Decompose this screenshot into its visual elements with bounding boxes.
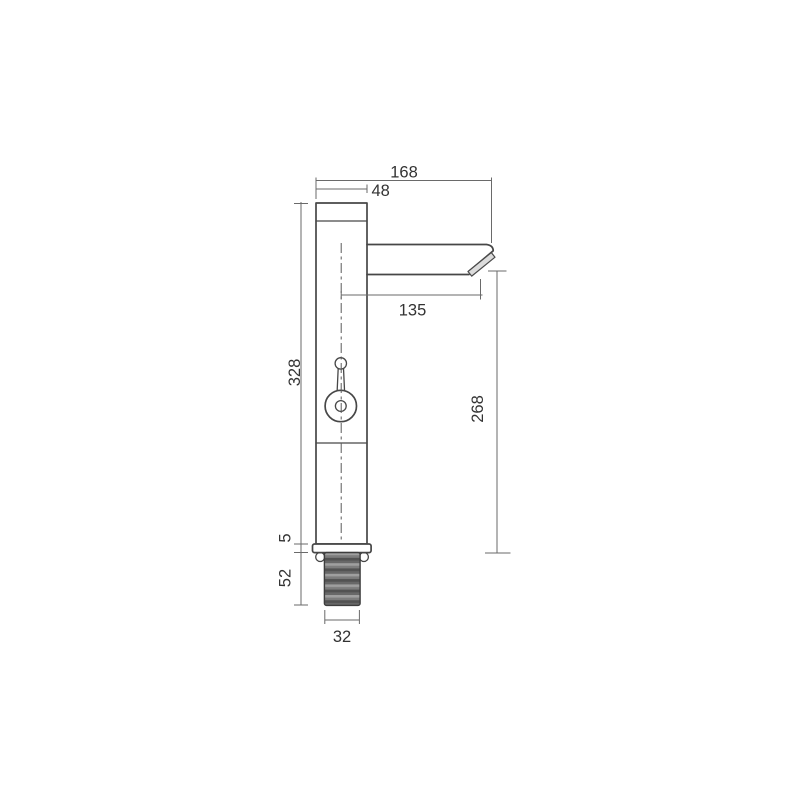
dim-label-shank-width: 32: [333, 628, 351, 646]
base-plate: [313, 544, 372, 553]
page-canvas: 168 48 328 5 52 135: [0, 0, 800, 800]
dim-label-shank-length: 52: [276, 569, 294, 587]
dim-left-stack: 328 5 52: [276, 202, 308, 605]
faucet-outline: [313, 203, 496, 605]
dim-label-spout-reach: 135: [399, 302, 427, 320]
dim-label-body-width: 48: [372, 182, 390, 200]
dim-label-outlet-height: 268: [469, 395, 487, 423]
dim-label-total-width: 168: [390, 164, 418, 182]
dim-label-total-height: 328: [286, 359, 304, 387]
dim-shank-width: 32: [325, 610, 360, 646]
dim-label-base-thickness: 5: [276, 533, 294, 542]
dim-body-width: 48: [316, 182, 390, 200]
threaded-shank: [324, 553, 360, 606]
mounting-nut-left: [316, 553, 325, 562]
spout-aerator: [468, 253, 495, 277]
dim-outlet-height: 268: [469, 271, 511, 553]
faucet-dimension-drawing: 168 48 328 5 52 135: [0, 0, 800, 800]
